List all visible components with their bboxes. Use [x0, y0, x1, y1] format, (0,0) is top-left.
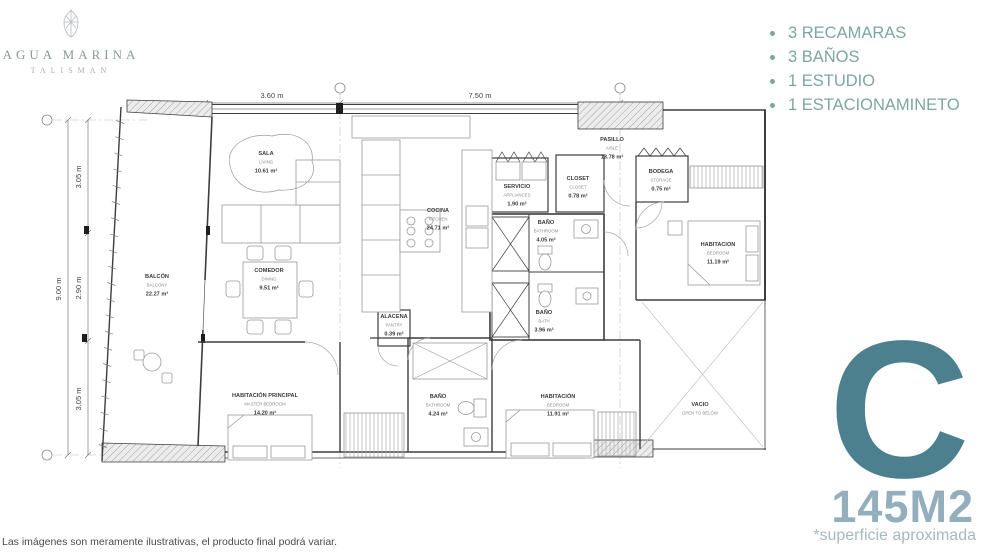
kitchen-counters — [352, 116, 492, 312]
svg-text:BALCÓN: BALCÓN — [145, 272, 169, 280]
svg-text:13.78 m²: 13.78 m² — [601, 154, 624, 161]
svg-text:BAÑO: BAÑO — [536, 309, 553, 316]
svg-text:VACIO: VACIO — [691, 402, 709, 408]
bed-master — [228, 415, 312, 460]
svg-text:AISLE: AISLE — [606, 146, 618, 151]
feature-list: 3 RECAMARAS 3 BAÑOS 1 ESTUDIO 1 ESTACION… — [770, 24, 960, 120]
page: { "brand": { "line1": "AGUA MARINA", "li… — [0, 0, 986, 556]
room-label-bano1: BAÑOBATHROOM4.05 m² — [534, 219, 559, 244]
balcony-railing — [99, 121, 124, 448]
svg-text:CLOSET: CLOSET — [569, 185, 587, 190]
bullet-icon — [770, 103, 775, 108]
feature-item: 1 ESTUDIO — [770, 72, 960, 91]
laundry-units — [496, 162, 546, 180]
feature-item: 3 BAÑOS — [770, 48, 960, 67]
room-label-servicio: SERVICIOAPPLIANCES1.90 m² — [504, 184, 531, 208]
feature-label: 3 BAÑOS — [788, 48, 860, 67]
svg-text:MASTER BEDROOM: MASTER BEDROOM — [244, 402, 286, 407]
balcony-furniture — [134, 350, 172, 383]
svg-text:0.39 m²: 0.39 m² — [384, 331, 403, 338]
svg-text:BEDROOM: BEDROOM — [547, 403, 570, 408]
dimension-label: 3.60 m — [261, 91, 284, 100]
room-label-pasillo: PASILLOAISLE13.78 m² — [600, 137, 624, 161]
svg-text:22.27 m²: 22.27 m² — [146, 291, 169, 298]
bullet-icon — [770, 31, 775, 36]
feature-item: 3 RECAMARAS — [770, 24, 960, 43]
svg-text:BATHROOM: BATHROOM — [426, 403, 451, 408]
svg-text:DINING: DINING — [261, 277, 277, 282]
svg-text:BODEGA: BODEGA — [649, 169, 674, 175]
brand-logo: AGUA MARINA TALISMAN — [0, 8, 142, 75]
bano3-fixtures — [413, 343, 488, 446]
unit-area-note: *superficie aproximada — [813, 527, 976, 545]
dimension-label: 3.05 m — [74, 388, 83, 411]
room-label-balcon: BALCÓNBALCONY22.27 m² — [145, 272, 169, 298]
svg-text:10.61 m²: 10.61 m² — [255, 168, 278, 175]
svg-text:3.96 m²: 3.96 m² — [534, 327, 553, 334]
room-label-vacio: VACIOOPEN TO BELOW — [682, 402, 719, 416]
room-label-bano3: BAÑOBATHROOM4.24 m² — [426, 393, 451, 418]
svg-text:14.20 m²: 14.20 m² — [254, 410, 277, 417]
toilet-bano2 — [538, 284, 598, 307]
svg-text:24.71 m²: 24.71 m² — [427, 225, 450, 232]
svg-text:APPLIANCES: APPLIANCES — [504, 193, 531, 198]
svg-text:11.19 m²: 11.19 m² — [707, 259, 729, 266]
svg-text:COMEDOR: COMEDOR — [254, 268, 283, 274]
room-label-cocina: COCINAKITCHEN24.71 m² — [427, 208, 450, 232]
svg-text:BALCONY: BALCONY — [147, 283, 168, 288]
svg-text:0.75 m²: 0.75 m² — [651, 186, 670, 193]
svg-text:STORAGE: STORAGE — [651, 178, 672, 183]
dimension-label: 3.05 m — [74, 166, 83, 189]
brand-name: AGUA MARINA — [0, 47, 142, 63]
svg-text:BAÑO: BAÑO — [538, 219, 555, 226]
svg-text:HABITACIÓN PRINCIPAL: HABITACIÓN PRINCIPAL — [232, 391, 299, 399]
dimension-label: 7.50 m — [469, 91, 492, 100]
svg-text:LIVING: LIVING — [259, 160, 274, 165]
svg-text:COCINA: COCINA — [427, 208, 449, 214]
brand-subname: TALISMAN — [0, 66, 142, 75]
room-label-bano2: BAÑOBATH3.96 m² — [534, 309, 553, 334]
unit-area: 145M2 — [831, 484, 974, 529]
svg-text:BATH: BATH — [538, 319, 549, 324]
room-label-principal: HABITACIÓN PRINCIPALMASTER BEDROOM14.20 … — [232, 391, 299, 417]
svg-text:SERVICIO: SERVICIO — [504, 184, 531, 190]
toilet-bano1 — [538, 220, 598, 270]
feature-label: 3 RECAMARAS — [788, 24, 906, 43]
svg-text:HABITACIÓN: HABITACIÓN — [541, 392, 576, 400]
outer-walls — [102, 100, 766, 462]
dimension-label: 2.90 m — [74, 277, 83, 300]
svg-text:SALA: SALA — [258, 151, 273, 157]
svg-text:PASILLO: PASILLO — [600, 137, 624, 143]
room-label-alacena: ALACENAPANTRY0.39 m² — [380, 314, 407, 338]
gem-icon — [60, 8, 82, 38]
bullet-icon — [770, 79, 775, 84]
svg-text:BAÑO: BAÑO — [430, 393, 447, 400]
svg-text:BATHROOM: BATHROOM — [534, 229, 559, 234]
svg-text:4.05 m²: 4.05 m² — [536, 237, 555, 244]
room-label-sala: SALALIVING10.61 m² — [255, 151, 278, 175]
room-label-closet: CLOSETCLOSET0.78 m² — [567, 176, 590, 200]
svg-text:ALACENA: ALACENA — [380, 314, 407, 320]
svg-text:1.90 m²: 1.90 m² — [507, 201, 526, 208]
svg-text:HABITACION: HABITACION — [701, 242, 736, 248]
svg-text:11.91 m²: 11.91 m² — [547, 411, 569, 418]
svg-text:0.78 m²: 0.78 m² — [568, 193, 587, 200]
feature-label: 1 ESTUDIO — [788, 72, 875, 91]
disclaimer-text: Las imágenes son meramente ilustrativas,… — [2, 536, 337, 548]
svg-text:CLOSET: CLOSET — [567, 176, 590, 182]
svg-text:PANTRY: PANTRY — [385, 323, 402, 328]
svg-text:BEDROOM: BEDROOM — [707, 251, 730, 256]
svg-text:KITCHEN: KITCHEN — [429, 217, 448, 222]
vacio-cross — [642, 302, 763, 447]
room-label-bodega: BODEGASTORAGE0.75 m² — [649, 169, 674, 193]
svg-text:4.24 m²: 4.24 m² — [428, 411, 447, 418]
svg-text:9.51 m²: 9.51 m² — [259, 285, 278, 292]
furniture — [134, 116, 760, 460]
bullet-icon — [770, 55, 775, 60]
dimension-label: 9.00 m — [54, 278, 63, 301]
sofa — [222, 160, 340, 243]
feature-item: 1 ESTACIONAMINETO — [770, 96, 960, 115]
unit-letter: C — [828, 312, 970, 508]
feature-label: 1 ESTACIONAMINETO — [788, 96, 960, 115]
svg-text:OPEN TO BELOW: OPEN TO BELOW — [682, 411, 719, 416]
